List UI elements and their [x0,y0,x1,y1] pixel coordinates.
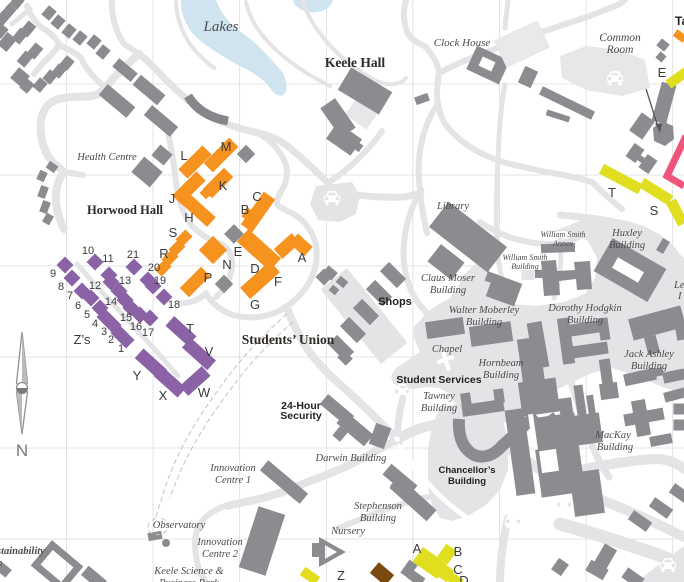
svg-text:W: W [198,385,211,400]
svg-text:D: D [459,573,468,582]
svg-text:E: E [658,65,667,80]
svg-text:P: P [204,270,213,285]
svg-text:Health Centre: Health Centre [76,152,137,163]
svg-text:N: N [222,257,231,272]
svg-text:20: 20 [148,262,160,274]
svg-text:stainability: stainability [0,546,45,557]
svg-text:E: E [234,244,243,259]
svg-text:4: 4 [92,318,98,330]
svg-text:12: 12 [89,280,101,292]
svg-text:Z’s: Z’s [73,332,91,347]
svg-text:Observatory: Observatory [153,520,206,531]
svg-text:V: V [205,344,214,359]
svg-text:S: S [169,225,178,240]
svg-text:S: S [650,203,659,218]
svg-text:Annex: Annex [552,239,573,248]
svg-text:Common: Common [599,32,641,44]
svg-text:MacKay: MacKay [594,430,631,441]
svg-text:Library: Library [436,201,469,212]
svg-text:21: 21 [127,249,139,261]
svg-text:William Smith: William Smith [502,253,547,262]
svg-text:A: A [298,250,307,265]
svg-text:Innovation: Innovation [196,537,243,548]
svg-text:19: 19 [154,275,166,287]
svg-text:T: T [608,185,616,200]
svg-text:Stephenson: Stephenson [354,501,402,512]
svg-text:Chancellor’s: Chancellor’s [438,465,495,476]
svg-text:Clock House: Clock House [434,37,491,49]
svg-text:L: L [180,148,187,163]
svg-text:B: B [241,202,250,217]
svg-text:Innovation: Innovation [209,463,256,474]
svg-text:18: 18 [168,299,180,311]
svg-text:R: R [159,246,168,261]
svg-text:Ta: Ta [675,14,684,28]
svg-text:Building: Building [609,240,645,251]
svg-text:6: 6 [75,300,81,312]
svg-text:H: H [184,210,193,225]
svg-text:Building: Building [631,361,667,372]
svg-text:b: b [0,558,2,569]
svg-text:Keele Hall: Keele Hall [325,55,386,70]
svg-text:2: 2 [108,334,114,346]
svg-text:Lakes: Lakes [203,19,239,35]
svg-text:Jack Ashley: Jack Ashley [624,349,674,360]
svg-text:13: 13 [119,275,131,287]
svg-text:J: J [169,191,176,206]
svg-text:X: X [159,388,168,403]
svg-text:Centre 2: Centre 2 [202,549,239,560]
svg-text:Horwood Hall: Horwood Hall [87,203,164,217]
svg-text:14: 14 [105,296,117,308]
svg-text:3: 3 [101,326,107,338]
svg-text:9: 9 [50,268,56,280]
svg-text:5: 5 [84,309,90,321]
svg-text:M: M [221,139,232,154]
svg-text:F: F [274,274,282,289]
svg-text:Le: Le [673,280,684,291]
svg-text:10: 10 [82,245,94,257]
svg-text:Building: Building [567,315,603,326]
svg-text:16: 16 [130,321,142,333]
svg-text:Dorothy Hodgkin: Dorothy Hodgkin [547,303,621,314]
svg-text:Nursery: Nursery [330,526,365,537]
svg-text:G: G [250,297,260,312]
svg-text:Z: Z [337,568,345,582]
svg-text:7: 7 [67,290,73,302]
svg-text:C: C [252,189,261,204]
svg-text:Shops: Shops [378,296,412,308]
svg-text:Keele Science &: Keele Science & [153,566,224,577]
svg-text:Building: Building [430,285,466,296]
svg-text:Building: Building [483,370,519,381]
svg-text:Walter Moberley: Walter Moberley [449,305,520,316]
svg-text:William Smith: William Smith [540,230,585,239]
svg-text:A: A [413,541,422,556]
svg-text:17: 17 [142,327,154,339]
svg-text:T: T [186,321,194,336]
svg-text:I: I [677,291,682,302]
svg-text:N: N [16,441,28,460]
svg-text:Tawney: Tawney [423,391,455,402]
svg-text:Building: Building [466,317,502,328]
svg-text:Building: Building [511,262,539,271]
svg-text:Centre 1: Centre 1 [215,475,251,486]
svg-text:Y: Y [133,368,142,383]
svg-text:Claus Moser: Claus Moser [421,273,476,284]
svg-text:8: 8 [58,281,64,293]
svg-text:Building: Building [597,442,633,453]
svg-text:D: D [250,261,259,276]
svg-text:Security: Security [280,410,322,422]
svg-text:B: B [454,544,463,559]
svg-text:Huxley: Huxley [611,228,642,239]
svg-text:Darwin Building: Darwin Building [315,453,387,464]
svg-text:Student Services: Student Services [396,374,481,386]
svg-text:Building: Building [448,476,486,487]
svg-text:Students’ Union: Students’ Union [242,332,335,347]
svg-text:11: 11 [102,253,113,265]
svg-text:Business Park: Business Park [159,578,219,582]
svg-text:Building: Building [421,403,457,414]
svg-text:K: K [219,178,228,193]
svg-text:1: 1 [118,343,124,355]
svg-text:Hornbeam: Hornbeam [478,358,524,369]
svg-text:Chapel: Chapel [432,344,462,355]
svg-text:Building: Building [360,513,396,524]
svg-text:Room: Room [606,44,634,56]
